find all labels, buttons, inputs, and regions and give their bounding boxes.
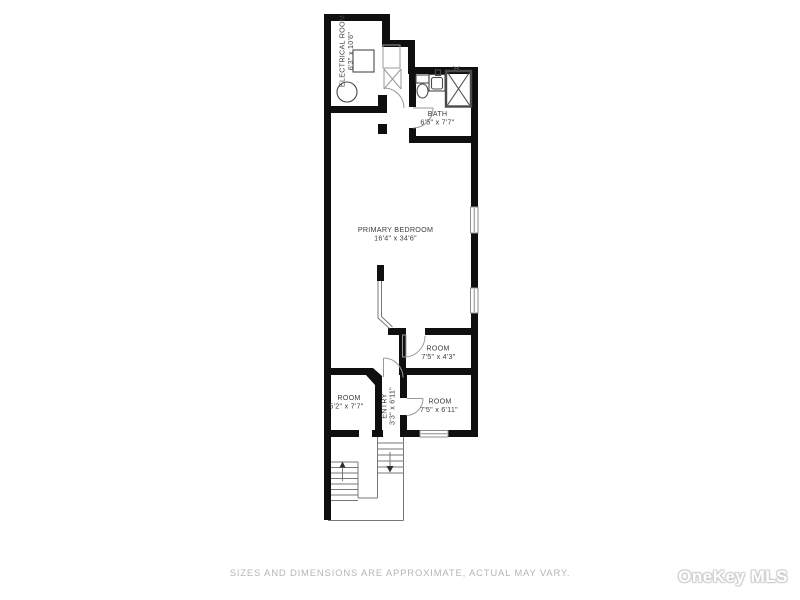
wall-right-exterior-middle — [471, 233, 478, 288]
dims-room-left: 5'2" x 7'7" — [329, 402, 363, 411]
wall-electrical-bottom — [324, 106, 386, 113]
toilet-icon — [416, 75, 429, 98]
dims-room-right: 7'5" x 6'11" — [420, 405, 458, 414]
wall-room-left-top — [324, 368, 366, 375]
window-right-lower — [471, 288, 479, 313]
wall-electrical-top — [324, 14, 390, 21]
floor-plan-drawing: ELECTRICAL ROOM 6'3" x 10'6" BATH 6'5" x… — [0, 0, 800, 600]
wall-bottom-c — [403, 430, 420, 437]
window-right-upper — [471, 207, 479, 233]
wall-bottom-a — [324, 430, 359, 437]
wall-room-right-top — [400, 368, 478, 375]
room-labels: ELECTRICAL ROOM 6'3" x 10'6" BATH 6'5" x… — [329, 15, 458, 425]
dims-entry: 3'3" x 6'11" — [388, 387, 397, 425]
dims-primary-bedroom: 16'4" x 34'6" — [374, 234, 417, 243]
onekey-mls-watermark: OneKey MLS — [678, 567, 788, 587]
wall-electrical-right-lower — [378, 95, 387, 113]
window-bottom — [420, 431, 448, 438]
dims-electrical-room: 6'3" x 10'6" — [346, 32, 355, 71]
dims-room-center: 7'5" x 4'3" — [421, 352, 455, 361]
walls — [324, 14, 478, 520]
fixtures — [337, 50, 471, 107]
wall-bath-bottom — [409, 136, 478, 143]
railing-post — [377, 265, 384, 281]
wall-room-center-top-right — [425, 328, 478, 335]
wall-bottom-d — [448, 430, 478, 437]
stairs — [328, 437, 404, 521]
stairs-down-flight — [378, 437, 404, 521]
stair-arrow-down-icon — [387, 466, 394, 473]
column-pier — [378, 124, 387, 134]
wall-left-exterior — [324, 14, 331, 520]
wall-entry-right-upper — [400, 375, 407, 398]
wall-bottom-b — [372, 430, 383, 437]
stairs-up-flight — [331, 462, 378, 501]
floor-plan-page: { "plan": { "rooms": { "electrical_room"… — [0, 0, 800, 600]
dims-bath: 6'5" x 7'7" — [420, 118, 454, 127]
wall-bath-left-upper — [409, 74, 416, 107]
stair-railing — [378, 281, 393, 329]
electrical-panel-icon — [353, 50, 374, 72]
